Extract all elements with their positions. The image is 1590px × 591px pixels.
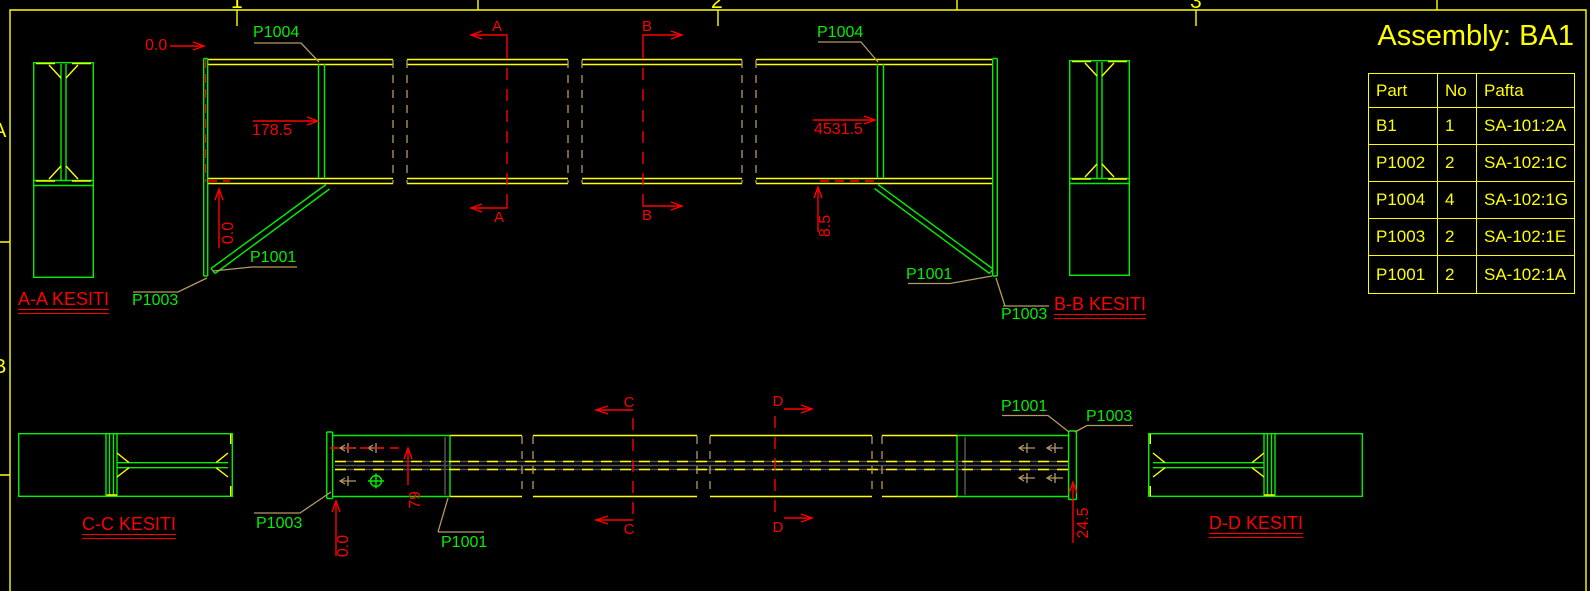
- drawing-geometry: [0, 0, 1590, 591]
- drawing-canvas[interactable]: 1 2 3 A B Assembly: BA1 Part No Pafta B1…: [0, 0, 1590, 591]
- front-view: [34, 31, 1130, 306]
- table-cell: B1: [1369, 108, 1438, 145]
- table-cell: 2: [1438, 145, 1477, 182]
- table-header: Pafta: [1477, 74, 1574, 108]
- part-label-p1003: P1003: [1001, 307, 1047, 323]
- table-cell: 2: [1438, 219, 1477, 256]
- section-mark-d: D: [770, 394, 786, 410]
- grid-col-label: 1: [231, 0, 243, 12]
- section-dd-shape: [1149, 434, 1363, 497]
- table-cell: SA-102:1G: [1477, 182, 1574, 219]
- dimension: 4531.5: [814, 122, 863, 138]
- grid-col-label: 3: [1190, 0, 1202, 12]
- table-cell: P1002: [1369, 145, 1438, 182]
- table-cell: P1003: [1369, 219, 1438, 256]
- dimension: 24.5: [1076, 504, 1092, 542]
- section-cc-shape: [19, 434, 233, 497]
- table-header: Part: [1369, 74, 1438, 108]
- table-cell: 2: [1438, 256, 1477, 293]
- table-cell: 4: [1438, 182, 1477, 219]
- part-label-p1003: P1003: [132, 293, 178, 309]
- grid-row-label: B: [0, 357, 6, 377]
- part-label-p1003: P1003: [256, 516, 302, 532]
- section-mark-c: C: [621, 395, 637, 411]
- section-mark-a: A: [489, 19, 505, 35]
- assembly-title: Assembly: BA1: [1377, 21, 1574, 51]
- parts-table: Part No Pafta B1 1 SA-101:2A P1002 2 SA-…: [1368, 73, 1575, 294]
- table-cell: P1004: [1369, 182, 1438, 219]
- caption-aa-kesiti: A-A KESITI: [18, 290, 109, 314]
- caption-cc-kesiti: C-C KESITI: [82, 515, 176, 539]
- table-cell: SA-102:1A: [1477, 256, 1574, 293]
- section-mark-c: C: [621, 522, 637, 538]
- part-label-p1004: P1004: [253, 25, 299, 41]
- caption-bb-kesiti: B-B KESITI: [1054, 295, 1146, 319]
- part-label-p1001: P1001: [250, 250, 296, 266]
- table-cell: 1: [1438, 108, 1477, 145]
- dimension: 79: [408, 488, 424, 512]
- section-mark-a: A: [491, 210, 507, 226]
- plan-view: [19, 405, 1363, 556]
- table-cell: SA-101:2A: [1477, 108, 1574, 145]
- sheet-border: [0, 0, 1586, 591]
- grid-col-label: 2: [711, 0, 723, 12]
- dimension: 8.5: [818, 211, 834, 241]
- dimension: 0.0: [221, 218, 237, 248]
- part-label-p1004: P1004: [817, 25, 863, 41]
- section-mark-b: B: [639, 19, 655, 35]
- table-header: No: [1438, 74, 1477, 108]
- part-label-p1001: P1001: [441, 535, 487, 551]
- part-label-p1003: P1003: [1086, 409, 1132, 425]
- table-cell: P1001: [1369, 256, 1438, 293]
- section-mark-d: D: [770, 520, 786, 536]
- caption-dd-kesiti: D-D KESITI: [1209, 514, 1303, 538]
- dimension: 0.0: [336, 531, 352, 561]
- part-label-p1001: P1001: [906, 267, 952, 283]
- dimension: 0.0: [145, 38, 167, 54]
- section-bb-shape: [1070, 61, 1130, 276]
- section-mark-b: B: [639, 208, 655, 224]
- table-cell: SA-102:1C: [1477, 145, 1574, 182]
- part-label-p1001: P1001: [1001, 399, 1047, 415]
- grid-row-label: A: [0, 121, 6, 141]
- table-cell: SA-102:1E: [1477, 219, 1574, 256]
- dimension: 178.5: [252, 123, 292, 139]
- section-aa-shape: [34, 63, 94, 278]
